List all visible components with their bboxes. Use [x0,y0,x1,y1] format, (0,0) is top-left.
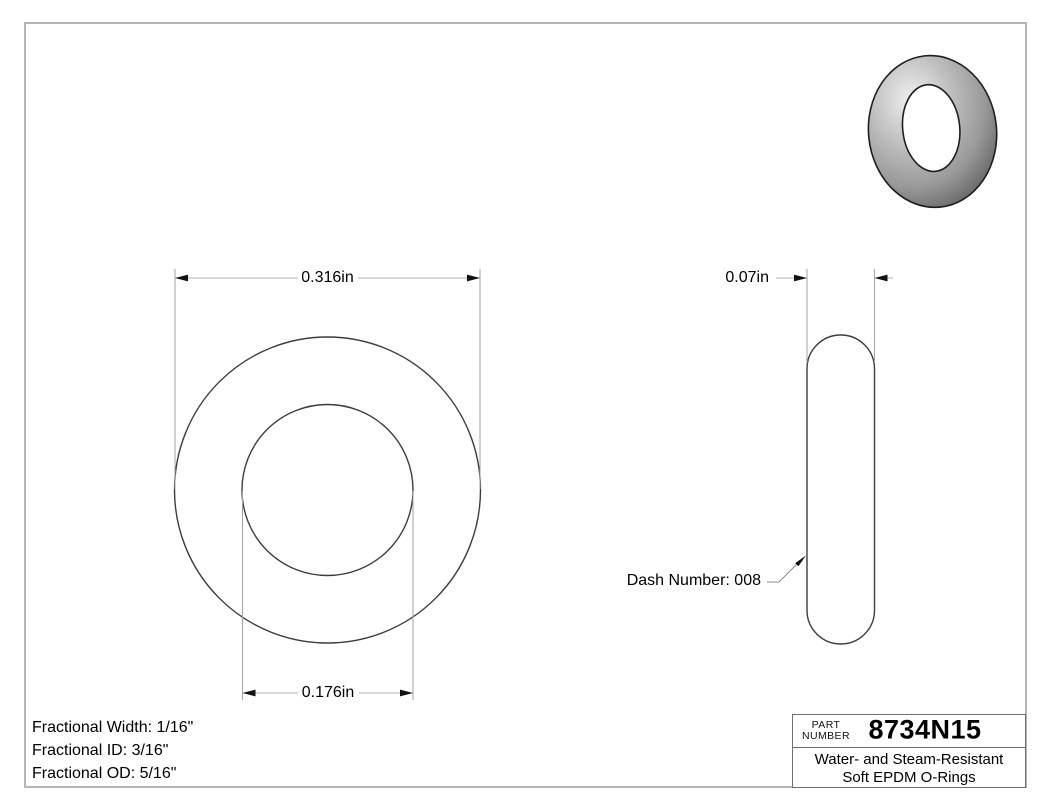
width-dimension-label: 0.07in [721,269,773,287]
dimension-lines [175,278,893,693]
part-caption-line2: NUMBER [802,731,850,742]
fractional-width-note: Fractional Width: 1/16" [32,716,193,739]
id-dimension-label: 0.176in [298,684,359,702]
title-block-part-row: PART NUMBER 8734N15 [793,715,1025,748]
part-number-caption: PART NUMBER [802,720,850,742]
oring-3d-render [861,49,1004,214]
title-block-description: Water- and Steam-Resistant Soft EPDM O-R… [793,748,1025,787]
part-number: 8734N15 [868,714,981,745]
description-line1: Water- and Steam-Resistant [793,751,1025,769]
side-view-profile [807,335,875,644]
fractional-id-note: Fractional ID: 3/16" [32,739,193,762]
technical-drawing-canvas [0,0,1050,811]
front-view-outer-circle [175,337,481,643]
fractional-notes: Fractional Width: 1/16" Fractional ID: 3… [32,716,193,785]
dash-number-label: Dash Number: 008 [623,572,765,590]
od-dimension-label: 0.316in [297,269,358,287]
fractional-od-note: Fractional OD: 5/16" [32,762,193,785]
title-block: PART NUMBER 8734N15 Water- and Steam-Res… [792,714,1026,788]
front-view-inner-circle [242,405,413,576]
dash-number-leader [767,556,806,583]
dimension-arrows [175,275,888,697]
description-line2: Soft EPDM O-Rings [793,769,1025,787]
